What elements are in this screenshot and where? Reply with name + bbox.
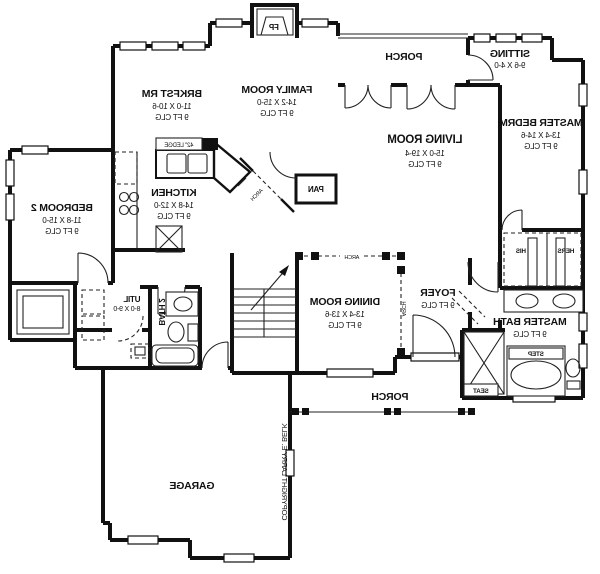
bedroom2-closet-shelf bbox=[17, 290, 69, 334]
staircase bbox=[233, 265, 296, 337]
label-brkfst-name: BRKFST RM bbox=[142, 88, 202, 100]
label-arch-top: ARCH bbox=[344, 255, 359, 261]
label-brkfst-dims: 11-0 X 10-6 bbox=[152, 102, 192, 111]
bath2-toilet bbox=[168, 322, 184, 342]
master-closets bbox=[504, 233, 581, 288]
label-kitchen-dims: 14-8 X 12-0 bbox=[153, 201, 193, 210]
label-pantry: PAN bbox=[308, 185, 324, 194]
label-bath2: BATH 2 bbox=[157, 298, 166, 326]
master-bath-fixtures bbox=[464, 290, 583, 396]
label-living-clg: 9 FT CLG bbox=[408, 160, 441, 169]
label-masterbr-dims: 13-4 X 14-6 bbox=[520, 131, 560, 140]
stair-direction-arrow bbox=[279, 265, 289, 276]
label-family-dims: 14-2 X 15-0 bbox=[256, 98, 296, 107]
label-dining-dims: 13-4 X 13-6 bbox=[324, 310, 364, 319]
label-arch-side: ARCH bbox=[400, 301, 406, 316]
label-sitting-dims: 9-6 X 4-0 bbox=[494, 61, 526, 70]
fireplace-box bbox=[252, 5, 297, 38]
garage-walls bbox=[103, 368, 290, 558]
label-masterbath-clg: 9 FT CLG bbox=[513, 330, 546, 339]
label-fireplace: FP bbox=[268, 23, 279, 32]
label-brkfst-clg: 9 FT CLG bbox=[155, 113, 188, 122]
label-foyer-name: FOYER bbox=[420, 287, 456, 299]
label-living-name: LIVING ROOM bbox=[387, 134, 462, 146]
label-porch-bottom: PORCH bbox=[372, 391, 409, 403]
label-dining-name: DINING ROOM bbox=[309, 296, 380, 308]
label-bedroom2-dims: 11-8 X 15-0 bbox=[42, 216, 82, 225]
label-garage: GARAGE bbox=[169, 480, 214, 492]
label-porch-top: PORCH bbox=[386, 51, 423, 63]
label-living-dims: 15-0 X 19-4 bbox=[404, 149, 444, 158]
label-family-clg: 9 FT CLG bbox=[260, 109, 293, 118]
label-his: HIS bbox=[516, 248, 526, 255]
angled-arch-bars bbox=[240, 158, 294, 212]
label-foyer-clg: 9 FT CLG bbox=[421, 301, 454, 310]
label-family-name: FAMILY ROOM bbox=[241, 84, 312, 96]
label-masterbath-name: MASTER BATH bbox=[493, 316, 566, 328]
bath2-vanity bbox=[166, 292, 198, 316]
floor-plan-svg: BRKFST RM 11-0 X 10-6 9 FT CLG FAMILY RO… bbox=[0, 0, 600, 574]
label-hers: HERS bbox=[558, 248, 575, 255]
label-seat: SEAT bbox=[473, 388, 489, 395]
label-kitchen-clg: 9 FT CLG bbox=[157, 212, 190, 221]
label-dining-clg: 9 FT CLG bbox=[328, 321, 361, 330]
label-sitting-name: SITTING bbox=[490, 48, 530, 60]
label-masterbr-clg: 9 FT CLG bbox=[524, 142, 557, 151]
copyright-notice: COPYRIGHT LARRY E. BELK bbox=[280, 423, 289, 520]
doors bbox=[78, 55, 522, 368]
label-ledge: 42" LEDGE bbox=[164, 143, 193, 149]
label-bedroom2-name: BEDROOM 2 bbox=[31, 202, 93, 214]
label-bedroom2-clg: 9 FT CLG bbox=[45, 227, 78, 236]
label-step: STEP bbox=[528, 351, 544, 358]
label-kitchen-name: KITCHEN bbox=[151, 187, 196, 199]
label-util-dims: 8-0 X 9-0 bbox=[113, 306, 140, 313]
label-util-name: UTIL bbox=[123, 295, 140, 304]
floor-plan-page: BRKFST RM 11-0 X 10-6 9 FT CLG FAMILY RO… bbox=[0, 0, 600, 574]
front-door-threshold bbox=[411, 353, 459, 361]
master-toilet bbox=[566, 359, 580, 377]
label-arch-diag: ARCH bbox=[250, 188, 265, 203]
label-masterbr-name: MASTER BEDRM bbox=[499, 117, 583, 129]
